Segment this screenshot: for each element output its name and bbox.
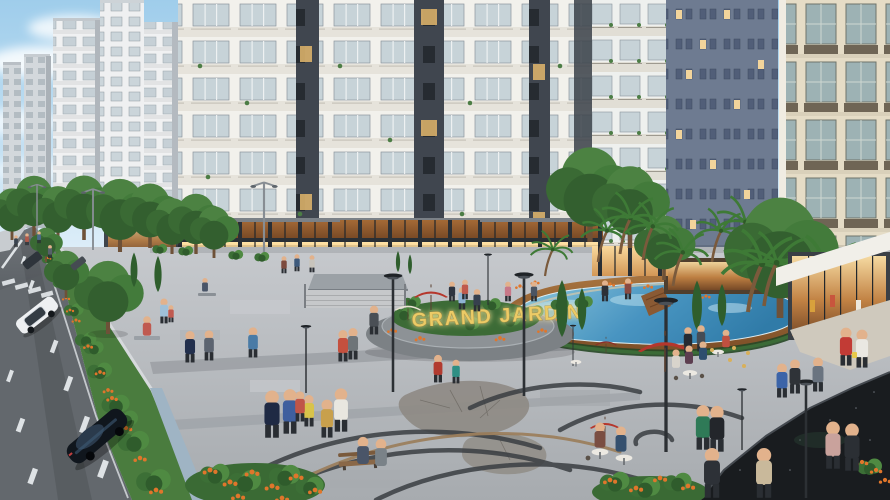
- person: [202, 278, 208, 292]
- person: [357, 437, 369, 464]
- person: [672, 349, 680, 367]
- person: [595, 422, 606, 447]
- scene-stage: GRAND JARDIN: [0, 0, 890, 500]
- person: [722, 330, 730, 347]
- shopping-bag: [852, 352, 857, 358]
- person: [375, 439, 387, 466]
- person: [685, 345, 693, 363]
- person: [616, 426, 627, 451]
- scene-image: GRAND JARDIN: [0, 0, 890, 500]
- person: [699, 341, 707, 359]
- person: [143, 316, 151, 335]
